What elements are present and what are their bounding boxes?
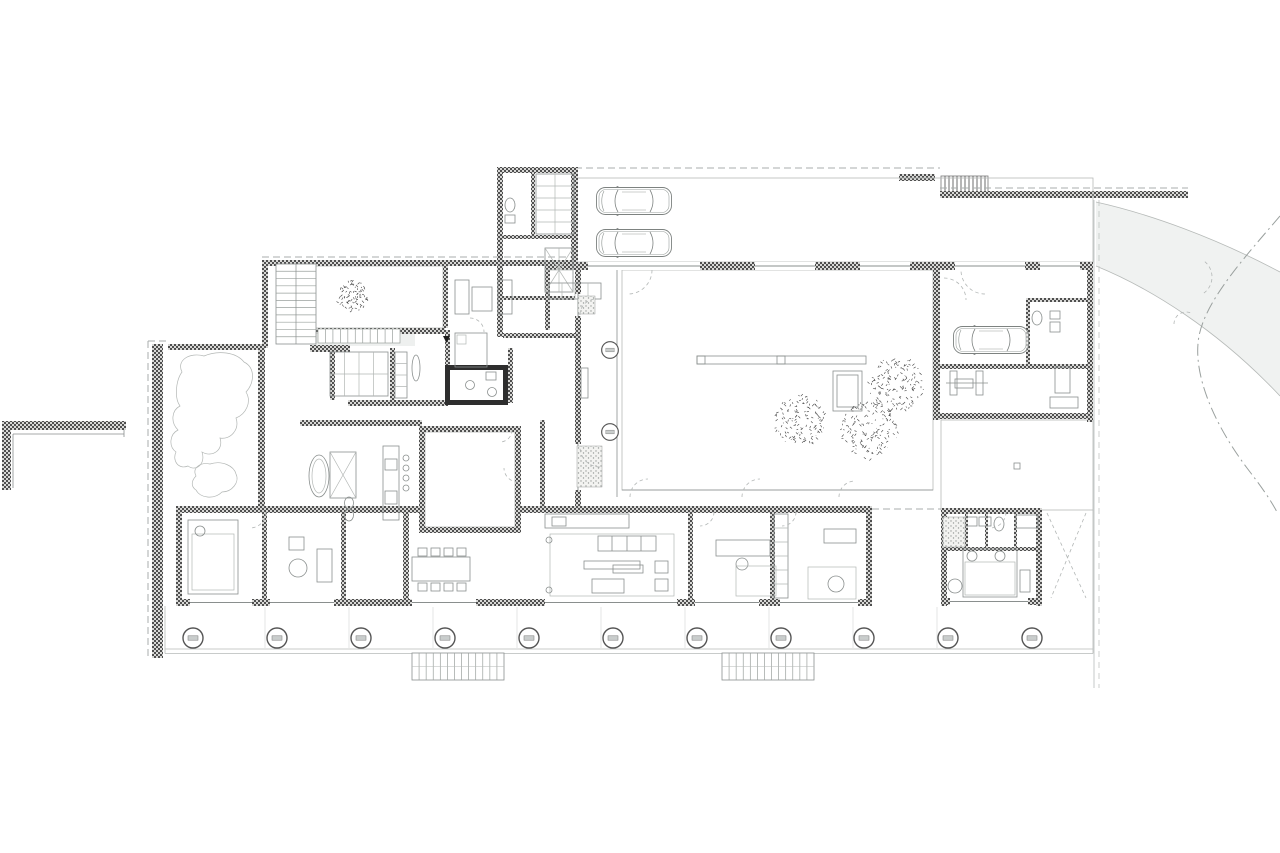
entrance-gate <box>899 174 988 193</box>
terrace-marker <box>1014 463 1020 469</box>
door-swing-arc <box>630 479 648 497</box>
sitting-room-furniture <box>289 537 332 582</box>
car <box>597 186 672 217</box>
door-swing-arc <box>470 318 484 332</box>
garage-wc <box>1032 311 1060 332</box>
bed-1 <box>188 520 238 594</box>
dining-chair <box>418 583 427 591</box>
study-2 <box>774 514 856 599</box>
east-terrace-paving <box>941 420 1093 510</box>
dining-chair <box>431 583 440 591</box>
exterior-stair <box>722 653 814 680</box>
inner-patio-paving <box>425 432 515 527</box>
tree <box>775 394 826 444</box>
garden-wall-fragment <box>2 421 126 490</box>
garden-landscape <box>171 353 253 497</box>
dining-chair <box>457 583 466 591</box>
dining-chairs <box>418 548 466 591</box>
dining-chair <box>431 548 440 556</box>
tree <box>867 359 923 412</box>
door-swing-arc <box>742 479 760 497</box>
floor-plan-drawing <box>0 0 1280 853</box>
dining-chair <box>418 548 427 556</box>
dining-chair <box>444 548 453 556</box>
gym-equipment <box>946 367 1078 408</box>
veranda-column <box>435 628 455 648</box>
floor-plan-canvas <box>0 0 1280 853</box>
veranda-column <box>938 628 958 648</box>
veranda-column <box>603 628 623 648</box>
living-room-furniture <box>546 534 674 596</box>
veranda-column <box>351 628 371 648</box>
study-1 <box>716 540 776 596</box>
veranda-column <box>519 628 539 648</box>
entry-mat <box>577 446 602 487</box>
walkway-column <box>602 342 619 359</box>
wardrobe-grid <box>330 352 420 398</box>
interior-stair <box>276 264 316 344</box>
entry-mat <box>578 296 595 314</box>
walkway-column <box>602 424 619 441</box>
north-bedroom <box>455 333 487 367</box>
door-swing-arc <box>628 270 652 294</box>
terrace-steps <box>318 329 400 343</box>
dining-chair <box>444 583 453 591</box>
street-wall <box>940 191 1188 198</box>
veranda-column <box>854 628 874 648</box>
entry-terrace-paving <box>315 266 443 328</box>
veranda-column <box>771 628 791 648</box>
dining-table <box>412 557 470 581</box>
tree <box>336 280 368 312</box>
courtyard-planter <box>833 371 862 411</box>
car <box>954 325 1029 356</box>
courtyard-bench <box>697 356 866 364</box>
veranda-column <box>183 628 203 648</box>
driveway <box>1096 202 1280 396</box>
door-swing-arc <box>944 278 966 300</box>
veranda-column <box>1022 628 1042 648</box>
hall-console <box>581 368 588 398</box>
bath-core-fixtures <box>466 372 497 397</box>
exterior-stair <box>412 653 504 680</box>
dining-chair <box>457 548 466 556</box>
door-swing-arc <box>700 512 714 526</box>
cars <box>597 186 1029 356</box>
central-courtyard-paving <box>622 270 933 490</box>
veranda-column <box>687 628 707 648</box>
bath-core-walls <box>445 365 508 405</box>
veranda-column <box>267 628 287 648</box>
car <box>597 228 672 259</box>
entry-mat <box>943 517 965 547</box>
door-swing-arc <box>839 481 855 497</box>
door-swing-arc <box>961 270 985 294</box>
